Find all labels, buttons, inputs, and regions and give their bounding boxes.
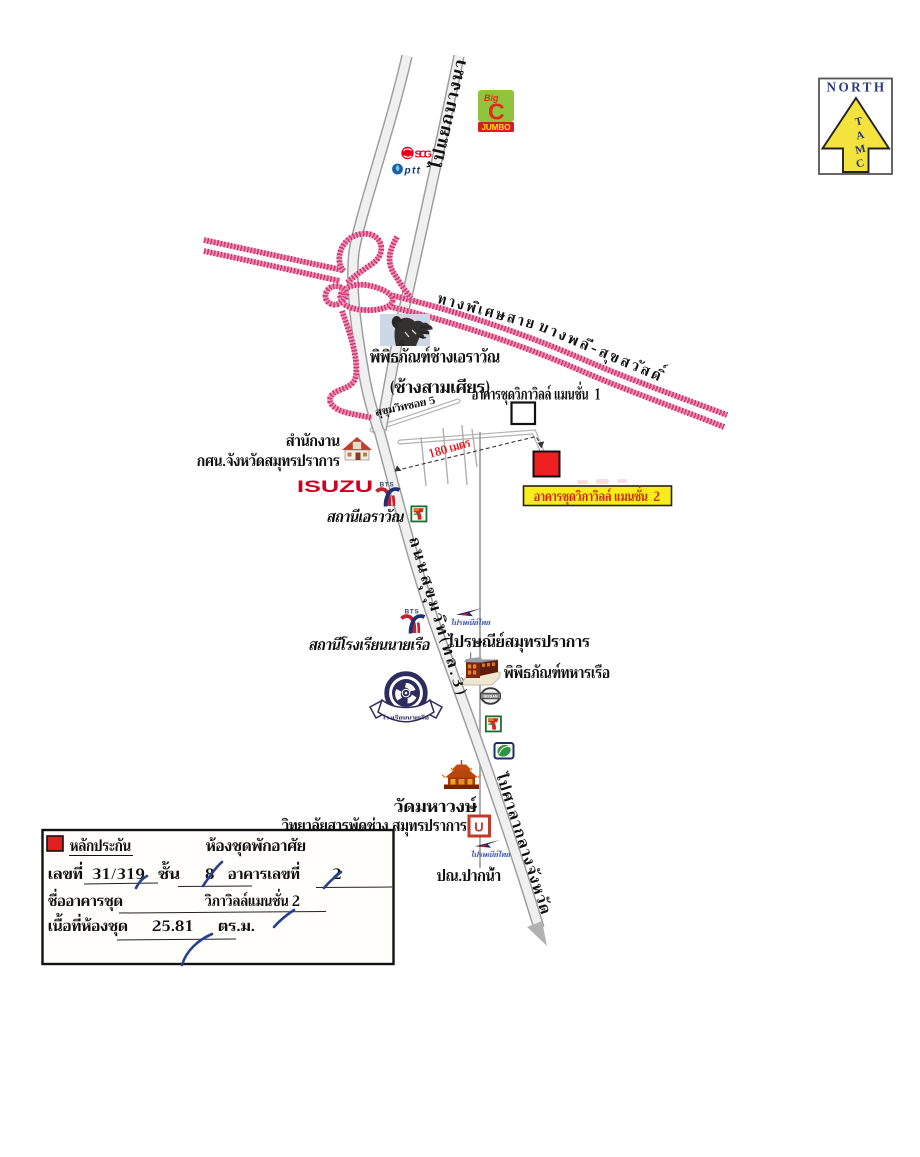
svg-text:ISUZU: ISUZU xyxy=(297,478,373,496)
svg-text:NORTH: NORTH xyxy=(827,80,885,95)
svg-text:NISSAN: NISSAN xyxy=(484,695,498,699)
svg-text:SCG: SCG xyxy=(415,149,433,161)
svg-text:ptt: ptt xyxy=(404,166,421,177)
svg-text:C: C xyxy=(488,99,505,125)
svg-text:JUMBO: JUMBO xyxy=(482,123,512,132)
svg-text:U: U xyxy=(474,820,483,835)
